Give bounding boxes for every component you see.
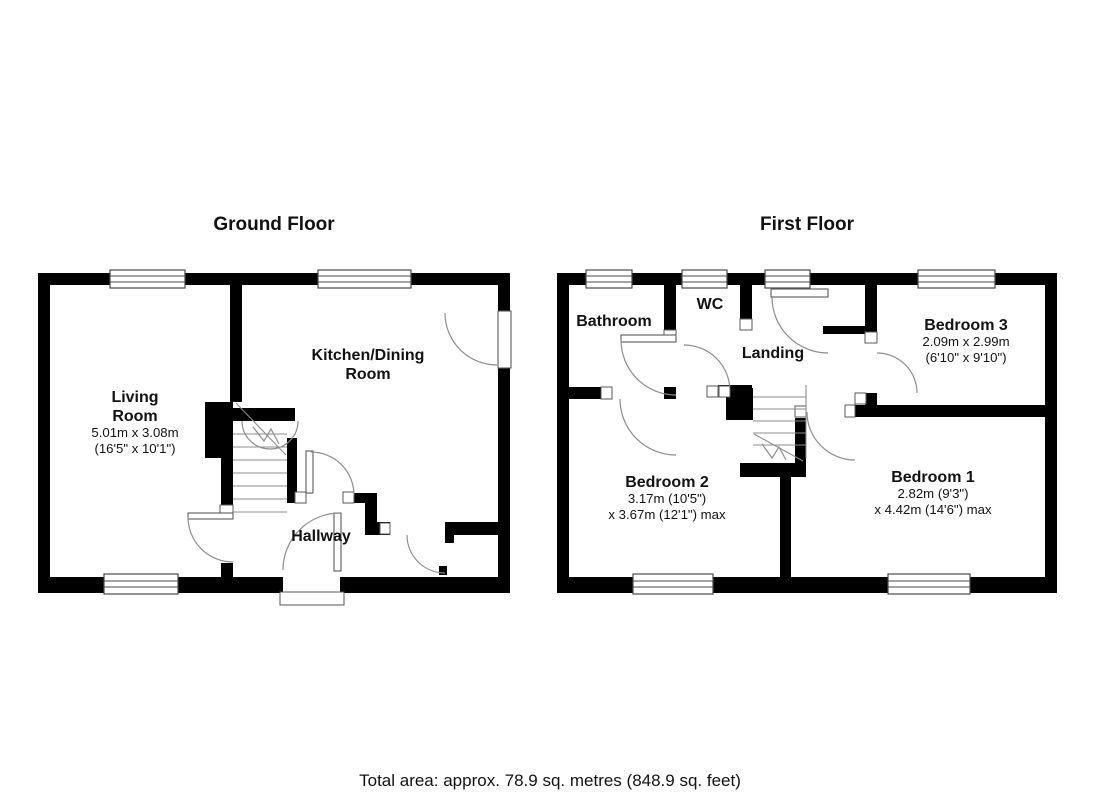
stair-break-line bbox=[762, 444, 786, 460]
bedroom1-dimensions-line1: 2.82m (9'3") bbox=[898, 486, 969, 501]
window bbox=[765, 270, 810, 288]
living-room-dimensions-imperial: (16'5" x 10'1") bbox=[94, 441, 175, 456]
door-jamb bbox=[601, 387, 612, 399]
door-jamb bbox=[707, 386, 718, 397]
kitchen-dining-label-2: Room bbox=[345, 366, 390, 383]
bedroom3-dimensions-metric: 2.09m x 2.99m bbox=[922, 334, 1009, 349]
door-jamb bbox=[380, 523, 390, 534]
bedroom3-door bbox=[855, 332, 917, 404]
window bbox=[888, 574, 970, 594]
landing-cupboard-door bbox=[771, 289, 828, 353]
bedroom1-dimensions-line2: x 4.42m (14'6") max bbox=[874, 502, 992, 517]
bedroom2-dimensions-line2: x 3.67m (12'1") max bbox=[608, 507, 726, 522]
door-jamb bbox=[740, 319, 752, 330]
window bbox=[104, 574, 178, 594]
floorplan-page: Ground Floor Living Room 5.01m x 3.08m (… bbox=[0, 0, 1100, 800]
door-swing-arc bbox=[311, 452, 354, 495]
bedroom3-label: Bedroom 3 bbox=[924, 317, 1008, 334]
hallway-label: Hallway bbox=[291, 528, 351, 545]
landing-label: Landing bbox=[742, 345, 804, 362]
door-swing-arc bbox=[807, 412, 855, 460]
door-jamb bbox=[865, 332, 877, 343]
door-swing-arc bbox=[620, 399, 676, 455]
first-floor-title: First Floor bbox=[760, 214, 855, 235]
wc-label: WC bbox=[697, 296, 724, 313]
kitchen-dining-label: Kitchen/Dining bbox=[312, 347, 425, 364]
door-jamb bbox=[845, 405, 855, 417]
window bbox=[586, 270, 632, 288]
door-jamb bbox=[295, 492, 306, 503]
window bbox=[682, 270, 727, 288]
living-room-label: Living bbox=[111, 389, 158, 406]
window bbox=[918, 270, 995, 288]
window bbox=[318, 270, 411, 288]
bathroom-label: Bathroom bbox=[576, 313, 652, 330]
door-swing-arc bbox=[445, 313, 497, 365]
door-leaf bbox=[621, 335, 676, 342]
store-room-door bbox=[380, 523, 445, 573]
door-leaf bbox=[188, 513, 233, 519]
door-swing-arc bbox=[877, 353, 917, 393]
bedroom3-dimensions-imperial: (6'10" x 9'10") bbox=[925, 350, 1006, 365]
total-area-text: Total area: approx. 78.9 sq. metres (848… bbox=[359, 771, 741, 790]
living-room-dimensions-metric: 5.01m x 3.08m bbox=[91, 425, 178, 440]
bedroom2-dimensions-line1: 3.17m (10'5") bbox=[628, 491, 706, 506]
kitchen-door bbox=[295, 451, 354, 503]
bedroom1-label: Bedroom 1 bbox=[891, 469, 975, 486]
living-room-label-2: Room bbox=[112, 408, 157, 425]
ground-interior-walls bbox=[205, 285, 498, 577]
bathroom-door bbox=[621, 330, 676, 395]
floor-plan-drawing: Ground Floor Living Room 5.01m x 3.08m (… bbox=[0, 0, 1100, 800]
ground-floor-plan: Ground Floor Living Room 5.01m x 3.08m (… bbox=[38, 214, 512, 605]
stair-break-line bbox=[253, 427, 279, 444]
window bbox=[110, 270, 185, 288]
rear-door bbox=[445, 311, 512, 368]
window bbox=[633, 574, 713, 594]
stair-jamb bbox=[719, 386, 730, 397]
door-leaf bbox=[306, 451, 313, 493]
door-swing-arc bbox=[684, 345, 730, 391]
door-threshold bbox=[280, 592, 344, 605]
door-leaf bbox=[771, 289, 828, 297]
door-jamb bbox=[795, 406, 806, 417]
ground-floor-title: Ground Floor bbox=[213, 214, 335, 235]
door-jamb bbox=[855, 393, 866, 404]
door-swing-arc bbox=[621, 340, 676, 395]
door-jamb bbox=[343, 492, 354, 503]
front-door bbox=[280, 513, 344, 605]
living-room-door bbox=[188, 505, 233, 563]
door-leaf bbox=[498, 311, 511, 368]
bedroom2-label: Bedroom 2 bbox=[625, 474, 709, 491]
first-floor-plan: First Floor Bathroom WC Landing Bedroom … bbox=[557, 214, 1057, 594]
